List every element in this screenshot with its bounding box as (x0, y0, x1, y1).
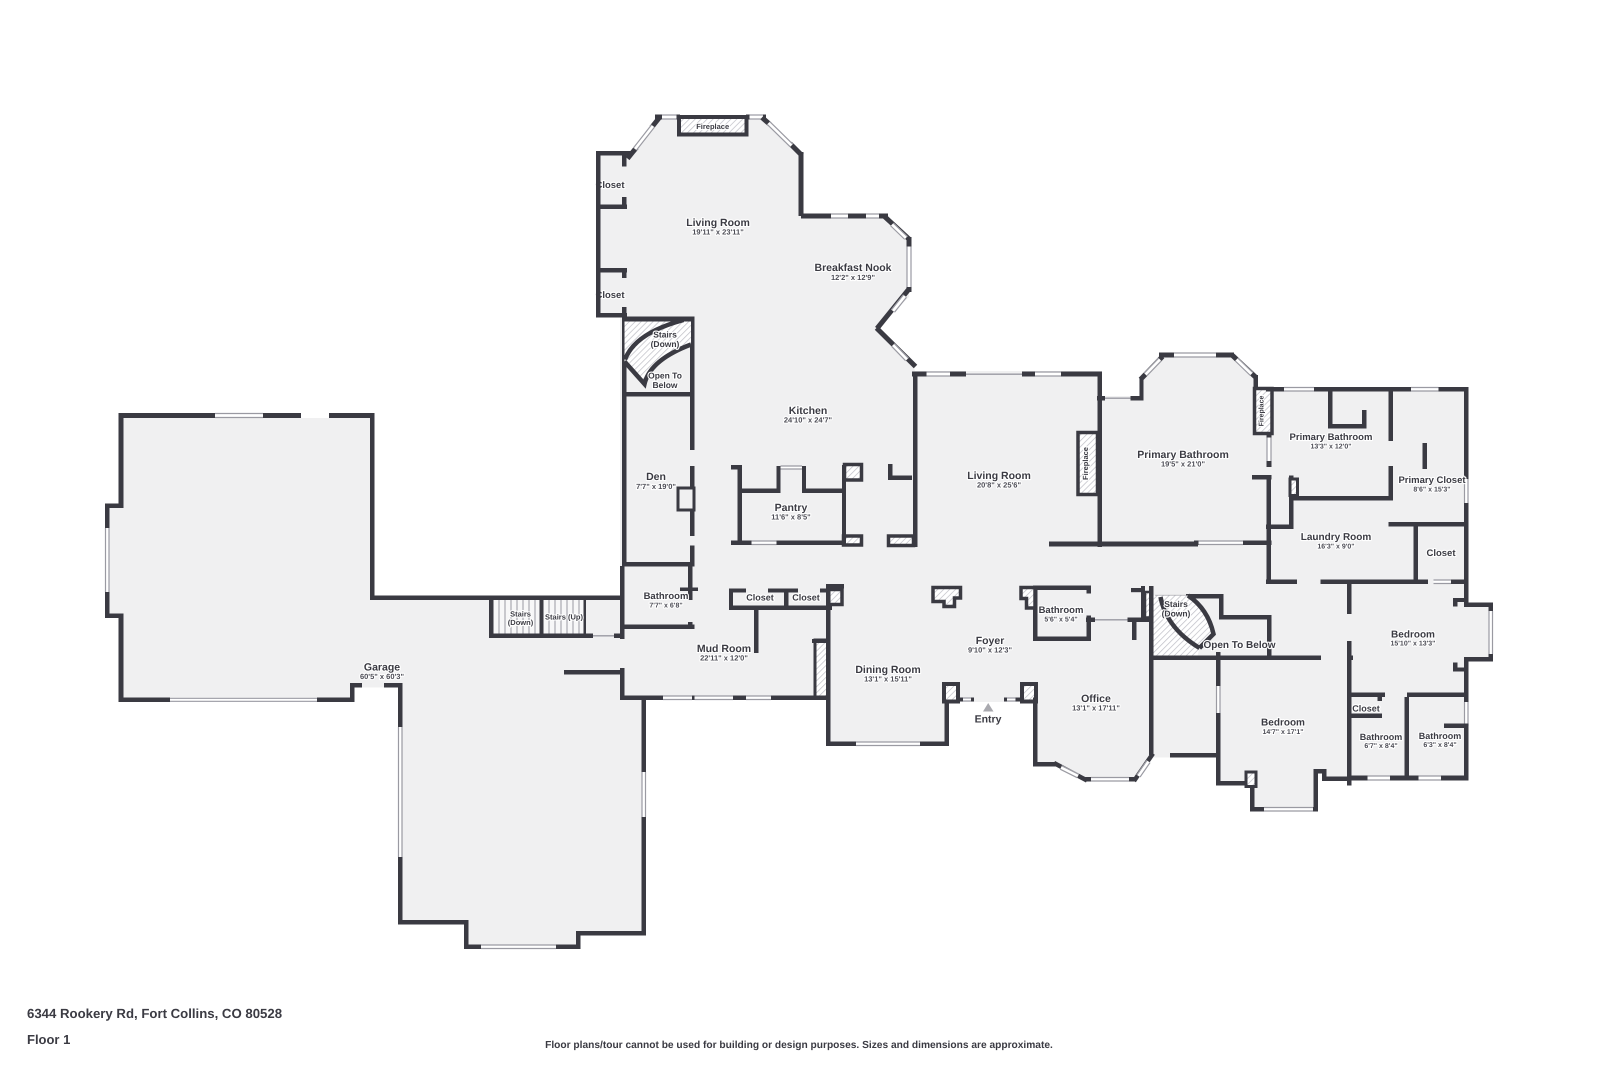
svg-text:20'8" x 25'6": 20'8" x 25'6" (977, 481, 1021, 490)
svg-text:Floor plans/tour cannot be use: Floor plans/tour cannot be used for buil… (545, 1040, 1053, 1051)
svg-text:Bathroom: Bathroom (1419, 731, 1462, 741)
svg-text:Bathroom: Bathroom (644, 591, 689, 602)
svg-text:Primary Closet: Primary Closet (1398, 475, 1466, 486)
svg-text:Bathroom: Bathroom (1039, 605, 1084, 616)
svg-text:6344 Rookery Rd, Fort Collins,: 6344 Rookery Rd, Fort Collins, CO 80528 (27, 1006, 282, 1021)
svg-text:Bedroom: Bedroom (1391, 630, 1435, 641)
svg-text:14'7" x 17'1": 14'7" x 17'1" (1262, 729, 1303, 736)
svg-text:13'1" x 17'11": 13'1" x 17'11" (1072, 704, 1120, 713)
svg-text:Closet: Closet (1426, 548, 1456, 559)
svg-text:Open To: Open To (648, 371, 682, 381)
svg-text:Laundry Room: Laundry Room (1301, 532, 1372, 543)
svg-text:16'3" x 9'0": 16'3" x 9'0" (1317, 544, 1354, 551)
svg-text:8'6" x 15'3": 8'6" x 15'3" (1413, 487, 1450, 494)
svg-text:6'3" x 8'4": 6'3" x 8'4" (1423, 742, 1456, 749)
svg-text:13'1" x 15'11": 13'1" x 15'11" (864, 675, 912, 684)
svg-text:15'10" x 13'3": 15'10" x 13'3" (1390, 641, 1435, 648)
svg-text:Bathroom: Bathroom (1360, 732, 1403, 742)
svg-text:5'6" x 5'4": 5'6" x 5'4" (1044, 617, 1077, 624)
svg-text:Fireplace: Fireplace (696, 122, 729, 131)
svg-text:Fireplace: Fireplace (1257, 396, 1265, 427)
svg-text:Closet: Closet (792, 593, 820, 603)
svg-text:Below: Below (652, 380, 677, 390)
svg-text:7'7" x 19'0": 7'7" x 19'0" (636, 482, 676, 491)
svg-text:Fireplace: Fireplace (1081, 447, 1090, 480)
svg-text:24'10" x 24'7": 24'10" x 24'7" (784, 416, 833, 425)
svg-text:Stairs: Stairs (1164, 599, 1188, 609)
svg-text:Floor 1: Floor 1 (27, 1032, 70, 1047)
svg-text:22'11" x 12'0": 22'11" x 12'0" (700, 654, 748, 663)
svg-text:(Down): (Down) (651, 339, 680, 349)
svg-text:Stairs (Up): Stairs (Up) (545, 613, 583, 622)
svg-text:11'6" x 8'5": 11'6" x 8'5" (771, 513, 811, 522)
svg-text:Open To Below: Open To Below (1203, 640, 1275, 651)
svg-text:(Down): (Down) (508, 618, 534, 627)
svg-text:19'5" x 21'0": 19'5" x 21'0" (1161, 460, 1205, 469)
svg-text:Closet: Closet (1352, 704, 1380, 714)
svg-text:Bedroom: Bedroom (1261, 718, 1305, 729)
svg-text:6'7" x 8'4": 6'7" x 8'4" (1364, 743, 1397, 750)
svg-text:7'7" x 6'8": 7'7" x 6'8" (649, 603, 682, 610)
svg-text:9'10" x 12'3": 9'10" x 12'3" (968, 646, 1012, 655)
svg-text:12'2" x 12'9": 12'2" x 12'9" (831, 273, 875, 282)
svg-text:Primary Bathroom: Primary Bathroom (1290, 432, 1373, 443)
svg-text:Closet: Closet (746, 593, 774, 603)
svg-text:13'3" x 12'0": 13'3" x 12'0" (1310, 444, 1351, 451)
svg-text:60'5" x 60'3": 60'5" x 60'3" (360, 672, 404, 681)
svg-text:(Down): (Down) (1162, 609, 1191, 619)
svg-text:Entry: Entry (975, 714, 1002, 726)
svg-text:19'11" x 23'11": 19'11" x 23'11" (692, 228, 744, 237)
svg-text:Stairs: Stairs (653, 330, 677, 340)
